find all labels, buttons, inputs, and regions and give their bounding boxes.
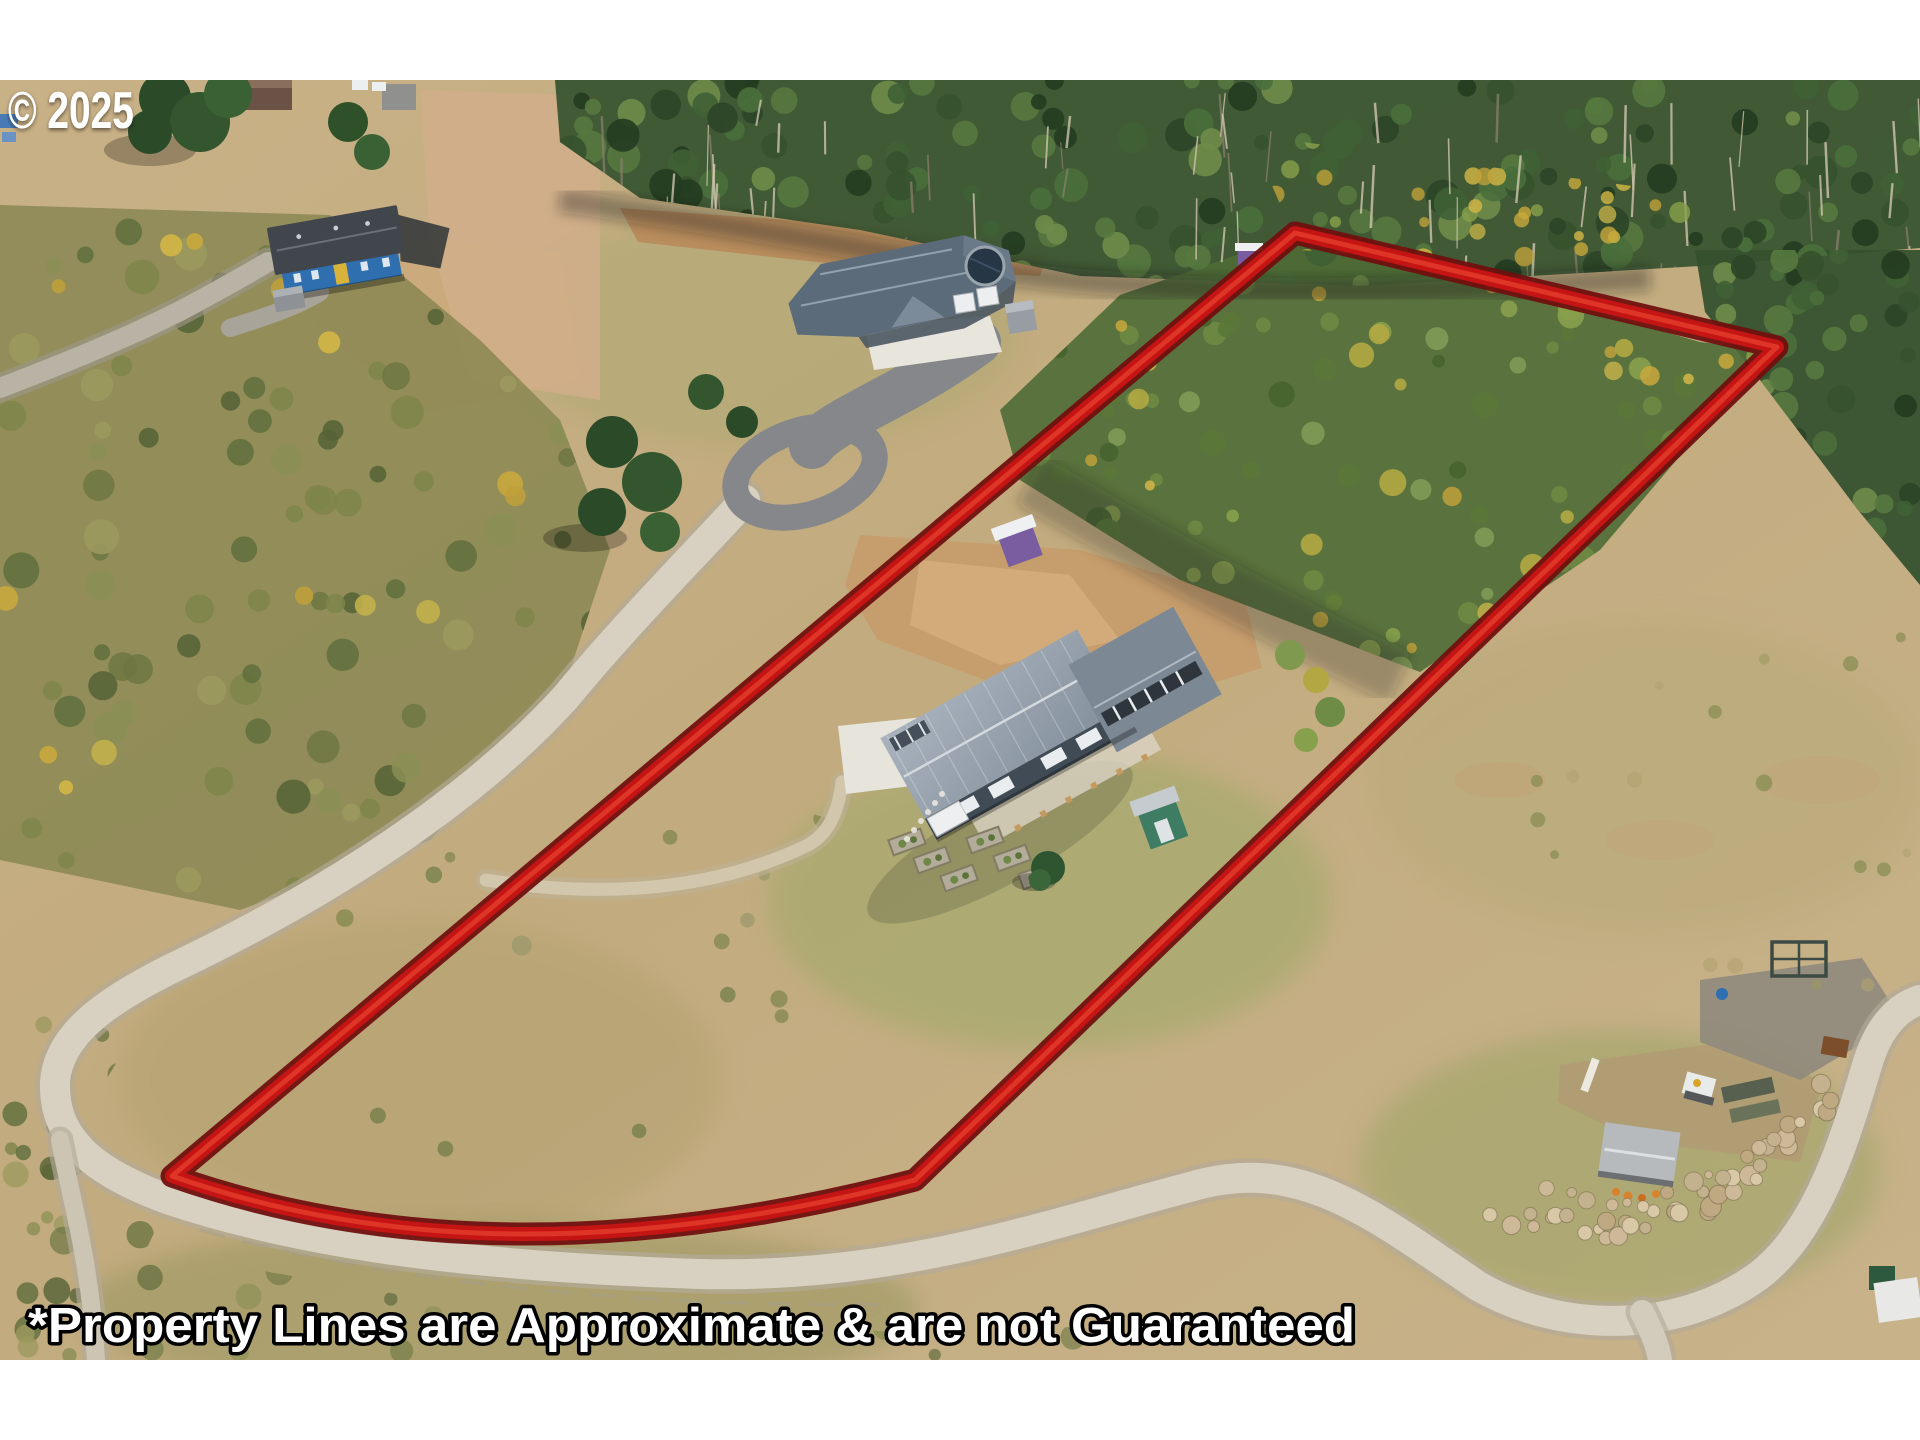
- small-shed: [1005, 300, 1037, 334]
- real-estate-aerial-listing-photo: © 2025 *Property Lines are Approximate &…: [0, 0, 1920, 1440]
- storage-shed: [1598, 1122, 1681, 1187]
- white-trailer: [1873, 1277, 1920, 1323]
- garage-door: [953, 293, 976, 314]
- letterbox-bottom: [0, 1360, 1920, 1440]
- copyright-watermark: © 2025: [8, 82, 134, 139]
- letterbox-top: [0, 0, 1920, 80]
- blue-barrel: [1716, 988, 1728, 1000]
- trampoline: [966, 247, 1004, 285]
- aerial-photo-canvas: © 2025 *Property Lines are Approximate &…: [0, 80, 1920, 1360]
- property-lines-disclaimer: *Property Lines are Approximate & are no…: [28, 1299, 1355, 1353]
- garage-door: [976, 286, 999, 307]
- aerial-photo: © 2025 *Property Lines are Approximate &…: [0, 80, 1920, 1360]
